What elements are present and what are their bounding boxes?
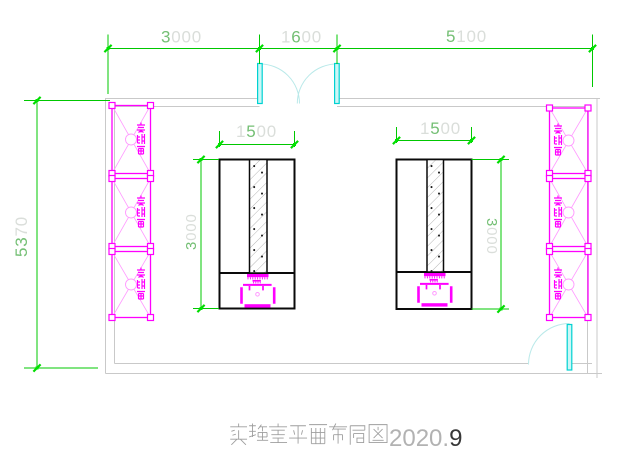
svg-text:3000: 3000 (483, 218, 500, 255)
svg-text:1600: 1600 (281, 28, 322, 47)
svg-text:3000: 3000 (161, 28, 202, 47)
svg-text:3000: 3000 (183, 213, 200, 250)
svg-text:1500: 1500 (420, 119, 461, 138)
svg-text:5370: 5370 (12, 216, 31, 257)
svg-text:5100: 5100 (446, 27, 487, 46)
svg-text:2020.9: 2020.9 (389, 425, 462, 452)
svg-text:1500: 1500 (236, 122, 277, 141)
